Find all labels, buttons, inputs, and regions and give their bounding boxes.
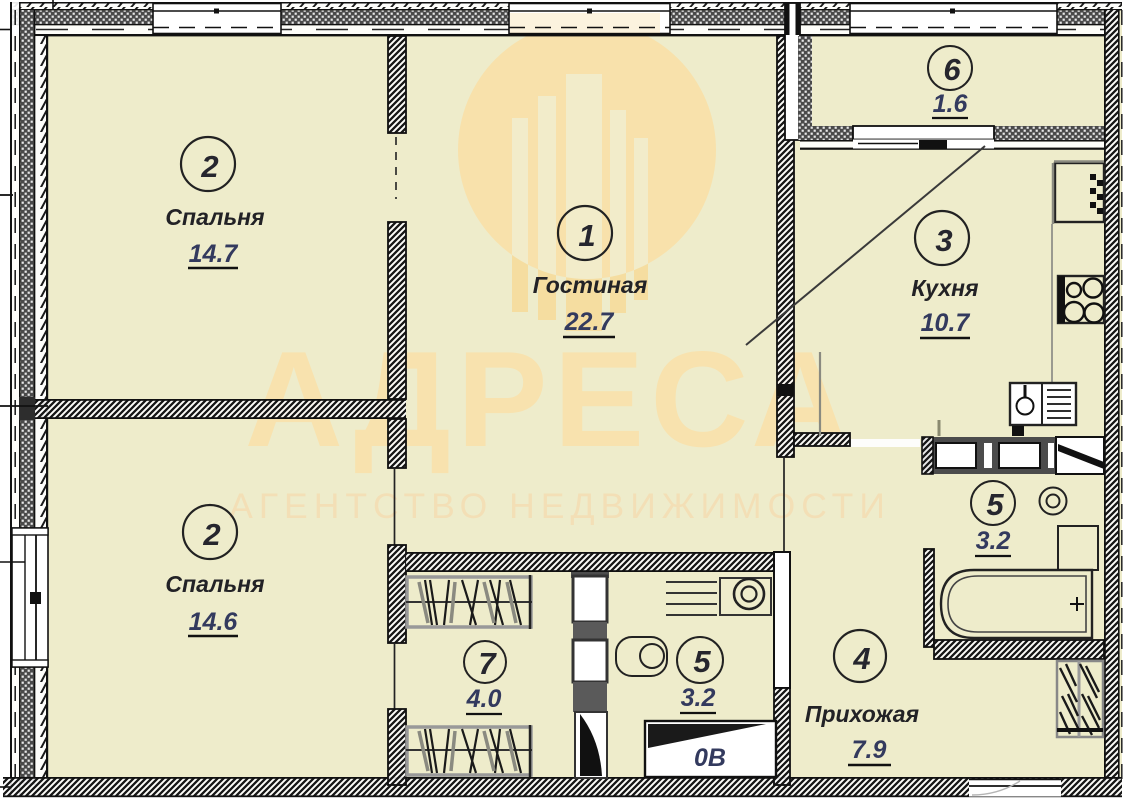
svg-text:5: 5 (693, 644, 711, 679)
svg-text:4: 4 (852, 641, 870, 676)
svg-text:АГЕНТСТВО НЕДВИЖИМОСТИ: АГЕНТСТВО НЕДВИЖИМОСТИ (229, 486, 891, 526)
svg-text:Спальня: Спальня (165, 571, 265, 597)
svg-text:4.0: 4.0 (466, 685, 502, 713)
svg-text:10.7: 10.7 (921, 309, 971, 337)
svg-text:3: 3 (935, 223, 952, 258)
svg-text:14.6: 14.6 (189, 608, 239, 636)
svg-text:Гостиная: Гостиная (533, 272, 648, 298)
svg-text:2: 2 (200, 149, 218, 184)
svg-text:Кухня: Кухня (911, 275, 979, 301)
svg-text:7: 7 (478, 646, 497, 681)
svg-text:1.6: 1.6 (933, 90, 969, 118)
svg-text:14.7: 14.7 (189, 240, 239, 268)
svg-text:7.9: 7.9 (852, 736, 887, 764)
svg-text:3.2: 3.2 (681, 684, 716, 712)
svg-text:22.7: 22.7 (564, 308, 615, 336)
svg-text:5: 5 (986, 487, 1004, 522)
svg-text:Прихожая: Прихожая (805, 701, 920, 727)
svg-text:Спальня: Спальня (165, 204, 265, 230)
svg-text:0В: 0В (694, 744, 726, 772)
svg-text:6: 6 (943, 52, 961, 87)
svg-text:2: 2 (202, 517, 220, 552)
svg-text:1: 1 (578, 218, 595, 253)
svg-text:3.2: 3.2 (976, 527, 1011, 555)
